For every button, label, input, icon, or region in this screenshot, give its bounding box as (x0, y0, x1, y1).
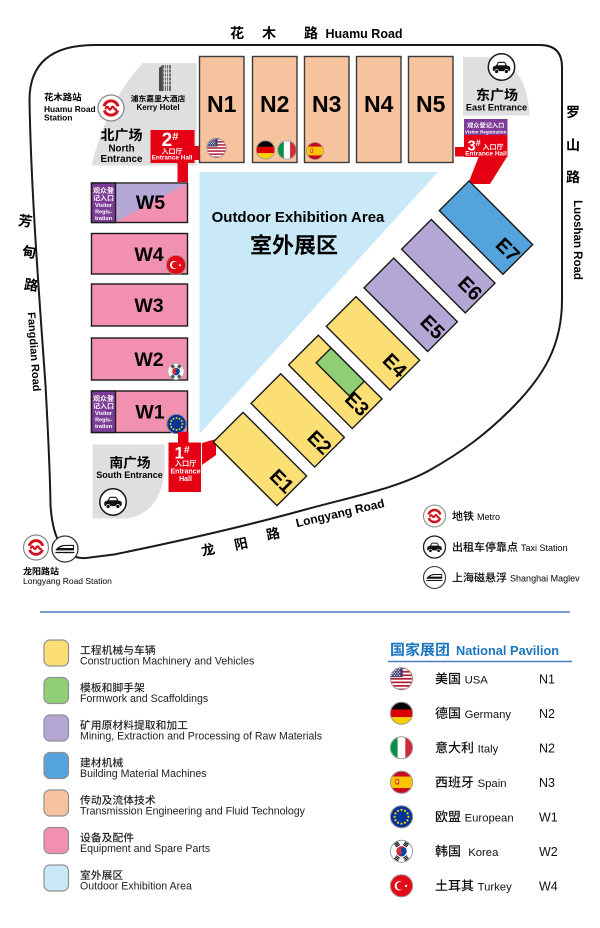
svg-text:Entrance Hall: Entrance Hall (465, 151, 507, 158)
svg-text:tration: tration (95, 216, 113, 222)
svg-text:Korea: Korea (468, 847, 499, 859)
svg-text:W2: W2 (134, 349, 163, 371)
svg-text:Station: Station (44, 113, 72, 123)
svg-text:N4: N4 (364, 91, 394, 117)
svg-text:Construction Machinery and Veh: Construction Machinery and Vehicles (80, 656, 254, 668)
svg-text:Luoshan Road: Luoshan Road (571, 200, 583, 280)
svg-text:N1: N1 (207, 91, 237, 117)
svg-text:N2: N2 (539, 707, 555, 721)
svg-text:Entrance: Entrance (101, 154, 143, 165)
svg-text:Visitor Registration: Visitor Registration (465, 130, 507, 135)
svg-text:Transmission Engineering and F: Transmission Engineering and Fluid Techn… (80, 806, 306, 818)
svg-text:N1: N1 (539, 672, 555, 686)
svg-text:Metro: Metro (477, 512, 500, 522)
svg-text:N3: N3 (312, 91, 341, 117)
svg-text:W1: W1 (539, 810, 558, 824)
svg-text:W4: W4 (134, 244, 163, 266)
svg-text:Equipment and Spare Parts: Equipment and Spare Parts (80, 843, 210, 855)
svg-text:Mining, Extraction and Process: Mining, Extraction and Processing of Raw… (80, 731, 322, 743)
svg-text:Taxi Station: Taxi Station (521, 543, 568, 553)
svg-text:W1: W1 (135, 402, 164, 424)
svg-text:Turkey: Turkey (478, 881, 512, 893)
svg-text:North: North (108, 144, 134, 155)
svg-text:Shanghai Maglev: Shanghai Maglev (510, 574, 580, 584)
svg-text:Formwork and Scaffoldings: Formwork and Scaffoldings (80, 693, 208, 705)
svg-text:Entrance Hall: Entrance Hall (152, 154, 193, 161)
svg-text:Regis-: Regis- (95, 210, 112, 216)
svg-text:Hall: Hall (179, 476, 192, 483)
svg-text:Italy: Italy (478, 743, 499, 755)
svg-text:N5: N5 (416, 91, 446, 117)
svg-text:W5: W5 (136, 192, 165, 214)
svg-text:European: European (465, 812, 514, 824)
svg-text:Longyang Road Station: Longyang Road Station (23, 576, 112, 586)
svg-text:Spain: Spain (478, 778, 507, 790)
svg-text:Regis-: Regis- (95, 418, 112, 424)
svg-text:N2: N2 (539, 741, 555, 755)
svg-text:Fangdian Road: Fangdian Road (25, 312, 43, 392)
svg-text:East Entrance: East Entrance (466, 103, 527, 113)
svg-text:National Pavilion: National Pavilion (456, 643, 559, 658)
svg-text:Kerry Hotel: Kerry Hotel (136, 103, 179, 112)
svg-text:Outdoor Exhibition Area: Outdoor Exhibition Area (212, 209, 385, 226)
svg-text:Building Material Machines: Building Material Machines (80, 768, 207, 780)
svg-text:Visitor: Visitor (95, 411, 113, 417)
svg-text:Outdoor Exhibition Area: Outdoor Exhibition Area (80, 881, 192, 893)
svg-text:N3: N3 (539, 776, 555, 790)
svg-text:tration: tration (95, 424, 113, 430)
svg-text:Entrance: Entrance (171, 469, 201, 476)
svg-text:Germany: Germany (465, 709, 512, 721)
svg-text:USA: USA (465, 674, 489, 686)
svg-text:W3: W3 (134, 295, 163, 317)
svg-text:W4: W4 (539, 879, 558, 893)
svg-text:N2: N2 (260, 91, 289, 117)
svg-text:South Entrance: South Entrance (96, 470, 163, 480)
svg-text:Huamu Road: Huamu Road (325, 27, 402, 41)
svg-text:Visitor: Visitor (95, 203, 113, 209)
svg-text:W2: W2 (539, 845, 558, 859)
